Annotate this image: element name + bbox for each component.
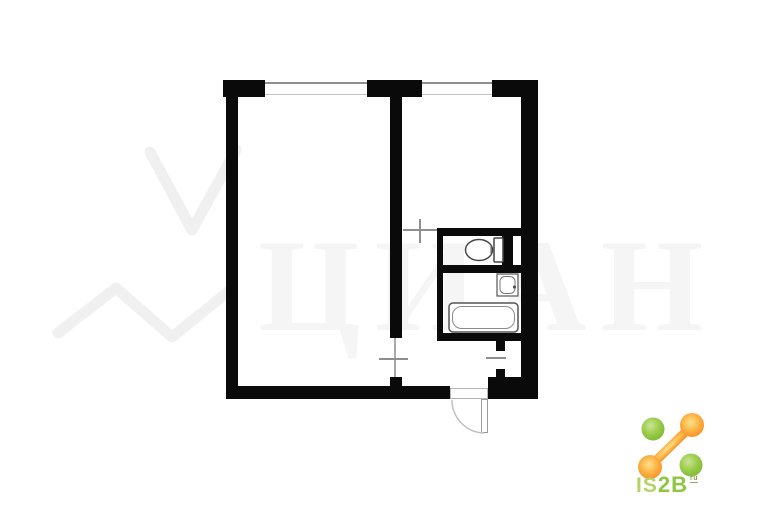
wall-left [226,80,238,399]
bathtub-icon [449,303,518,332]
wall-kitchen-hall [437,228,521,236]
wall-right [521,80,538,399]
wall-closet-left-bottom [496,369,505,377]
logo-text-is: IS [636,474,658,497]
wall-corner-fill [488,377,538,399]
window-sill-line [265,94,367,95]
logo-text: IS2Bru [636,472,696,498]
logo-text-2b: 2B [658,472,688,497]
window-sill-line [422,94,492,95]
wall-partition-living [390,95,402,338]
logo-text-ru: ru [690,475,698,483]
kitchen-door-jamb-line [419,219,421,243]
living-door-tick [379,358,408,360]
sink-icon [497,274,518,296]
wall-partition-living-lower [390,377,402,389]
wall-bath-bottom [437,333,521,341]
logo: IS2Bru [631,410,751,506]
entrance-door-icon [481,399,488,433]
window-icon [265,82,367,84]
entrance-threshold [450,388,488,399]
wall-wc-right [502,236,513,266]
wall-bath-block-left [437,228,443,341]
window-icon [422,82,492,84]
wall-wc-bath [437,265,521,273]
toilet-icon [466,238,504,262]
wall-bottom-left [226,386,450,399]
wall-closet-left-top [496,341,505,351]
closet-door-tick [486,357,506,359]
